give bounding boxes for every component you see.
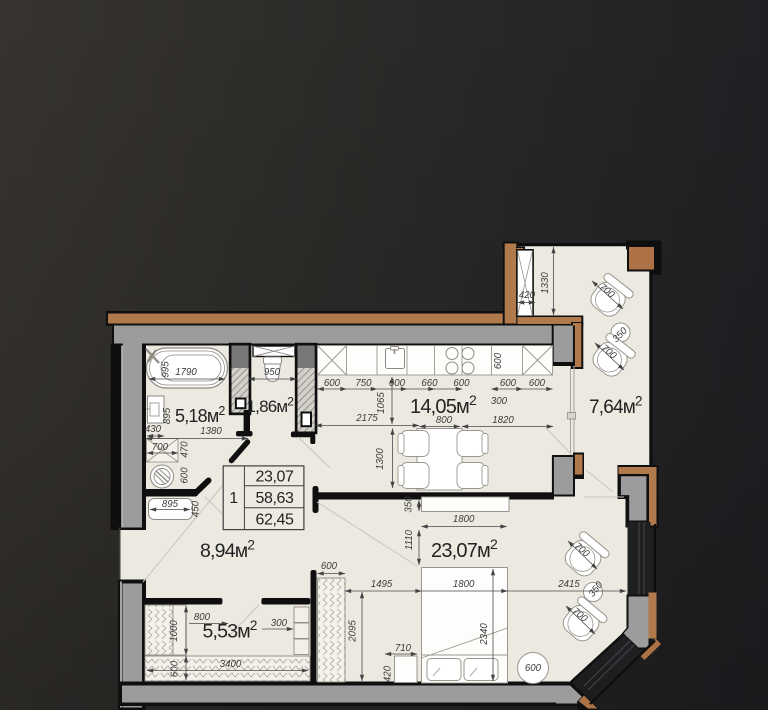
svg-text:3400: 3400 [220,659,242,670]
svg-text:1790: 1790 [175,367,197,378]
svg-text:300: 300 [271,618,288,629]
svg-text:14,05м2: 14,05м2 [410,392,477,418]
svg-text:23,07: 23,07 [255,469,294,486]
svg-text:710: 710 [395,643,412,654]
svg-text:2340: 2340 [479,623,490,646]
svg-text:600: 600 [493,352,504,369]
svg-text:5,53м2: 5,53м2 [203,618,258,643]
svg-text:2415: 2415 [557,579,580,590]
svg-text:1: 1 [229,490,238,507]
svg-text:23,07м2: 23,07м2 [431,536,498,562]
svg-text:2095: 2095 [348,620,359,643]
svg-text:350: 350 [404,496,415,513]
svg-text:600: 600 [453,378,470,389]
svg-text:420: 420 [519,290,536,301]
svg-text:600: 600 [500,378,517,389]
svg-text:1000: 1000 [169,620,180,642]
svg-text:895: 895 [162,499,179,510]
svg-text:1495: 1495 [371,579,393,590]
svg-text:1300: 1300 [375,448,386,470]
svg-text:5,18м2: 5,18м2 [175,404,225,426]
svg-text:470: 470 [180,441,191,458]
svg-text:8,94м2: 8,94м2 [200,538,255,563]
svg-text:1110: 1110 [404,529,415,550]
svg-text:1820: 1820 [492,415,514,426]
svg-text:660: 660 [421,378,438,389]
svg-text:895: 895 [162,407,173,424]
svg-text:450: 450 [191,500,202,517]
svg-text:1800: 1800 [453,579,475,590]
svg-text:600: 600 [525,663,542,674]
svg-text:700: 700 [152,442,169,453]
svg-text:950: 950 [264,367,281,378]
svg-text:2175: 2175 [355,413,378,424]
svg-text:430: 430 [145,424,162,435]
svg-text:600: 600 [170,660,181,677]
svg-text:600: 600 [389,378,406,389]
svg-text:1065: 1065 [376,392,387,414]
svg-text:600: 600 [324,378,341,389]
svg-text:62,45: 62,45 [255,512,294,529]
svg-text:600: 600 [180,467,191,484]
svg-text:750: 750 [355,378,372,389]
svg-text:1800: 1800 [453,514,475,525]
svg-text:995: 995 [161,361,172,378]
svg-text:7,64м2: 7,64м2 [589,394,643,419]
svg-text:600: 600 [529,378,546,389]
svg-text:300: 300 [491,396,508,407]
svg-text:600: 600 [321,561,338,572]
svg-text:420: 420 [383,665,394,682]
svg-text:1330: 1330 [540,272,551,294]
svg-text:1380: 1380 [200,426,222,437]
svg-text:1,86м2: 1,86м2 [247,395,295,417]
svg-text:58,63: 58,63 [255,490,294,507]
